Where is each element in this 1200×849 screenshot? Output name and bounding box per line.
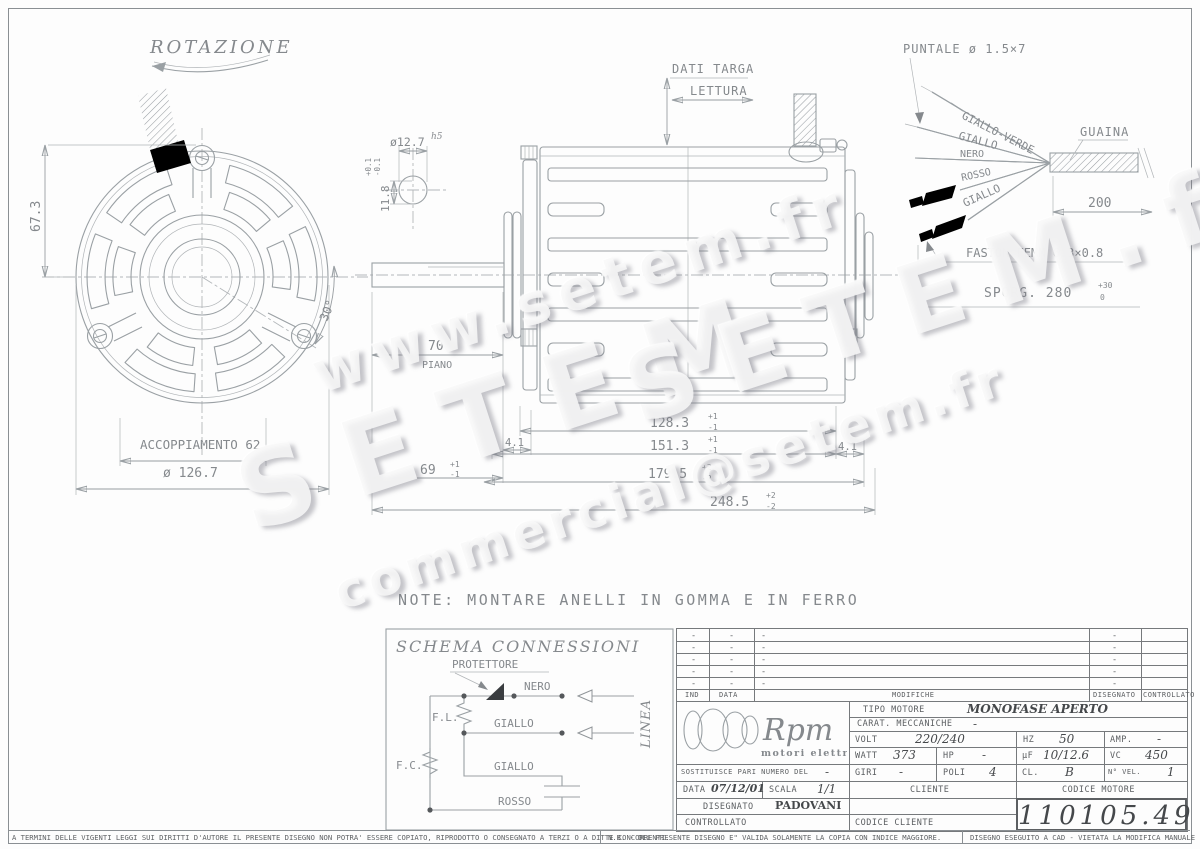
rev-disegnato: - [1112, 655, 1118, 665]
motor-front-view: ROTAZIONE 67.3 ACCOPPIAMENTO 62 ø 126.7 … [29, 37, 368, 495]
logo-subtext: motori elettrici [761, 748, 847, 759]
rev-modifiche: - [761, 679, 767, 689]
data-label: DATA [683, 785, 705, 795]
wire-stripe [951, 103, 963, 111]
tipo-motore-value: MONOFASE APERTO [967, 702, 1108, 716]
vc-label: VC [1110, 751, 1121, 761]
amp-value: - [1157, 732, 1161, 746]
volt-value: 220/240 [915, 732, 965, 746]
rev-ind: - [691, 631, 697, 641]
rev-ind: - [691, 643, 697, 653]
gland-nut [837, 140, 847, 150]
disegnato-label: DISEGNATO [703, 802, 754, 812]
drawing-sheet: ROTAZIONE 67.3 ACCOPPIAMENTO 62 ø 126.7 … [0, 0, 1200, 849]
schema-nero-label: NERO [524, 680, 551, 693]
connection-schema: SCHEMA CONNESSIONI PROTETTORE [386, 629, 673, 830]
schema-giallo2-label: GIALLO [494, 760, 534, 773]
watt-label: WATT [855, 751, 877, 761]
scala-label: SCALA [769, 785, 797, 795]
cl-value: B [1065, 765, 1074, 779]
right-ring-1 [856, 213, 864, 338]
rev-col-ind: IND [685, 691, 699, 699]
cable-fan-detail: PUNTALE ø 1.5×7 GIALLO-VERDE GIALLO NERO… [903, 42, 1154, 330]
vent-slot [87, 234, 112, 309]
tol-128-minus: -1 [708, 423, 718, 432]
nvel-label: N° VEL. [1108, 768, 1141, 776]
faston-connector-giallo [919, 215, 966, 242]
dim-4-1-left: 4.1 [505, 437, 524, 449]
dim-flat-11-8: 11.8 [379, 186, 392, 213]
sporg-tol-minus: 0 [1100, 293, 1105, 302]
data-value: 07/12/01 [711, 782, 765, 795]
linea-arrow-giallo [578, 727, 592, 739]
hz-label: HZ [1023, 735, 1034, 745]
tol-179-minus: -2 [702, 474, 712, 483]
title-block: - - - - - - - - - - - - - - - - - - - - [676, 628, 1188, 832]
scala-value: 1/1 [817, 782, 836, 796]
mounting-lug-left [88, 313, 143, 349]
uf-label: µF [1022, 751, 1033, 761]
linea-label: LINEA [639, 699, 654, 749]
dim-shaft-fit: h5 [431, 132, 443, 142]
dim-70: 70 [428, 339, 444, 354]
faston-connector-rosso [909, 185, 956, 208]
footer-nb: N.B. - DEL PRESENTE DISEGNO E" VALIDA SO… [608, 833, 941, 842]
rev-disegnato: - [1112, 679, 1118, 689]
vent-slot-right [771, 203, 827, 216]
rev-col-data: DATA [719, 691, 738, 699]
tol-128-plus: +1 [708, 412, 718, 421]
tol-151-minus: -1 [708, 446, 718, 455]
rev-data: - [729, 679, 735, 689]
logo-cylinders [684, 709, 758, 751]
hp-label: HP [943, 751, 954, 761]
puntale-tip-1 [921, 86, 932, 92]
rev-col-disegnato: DISEGNATO [1093, 691, 1135, 699]
tol-179-plus: +2 [702, 463, 712, 472]
footer-strip: A TERMINI DELLE VIGENTI LEGGI SUI DIRITT… [8, 830, 1190, 844]
tipo-motore-label: TIPO MOTORE [863, 705, 925, 715]
rev-modifiche: - [761, 631, 767, 641]
schema-fc-label: F.C. [396, 759, 423, 772]
wire-label-giallo-bottom: GIALLO [961, 182, 1003, 210]
linea-arrow-nero [578, 690, 592, 702]
dim-248-5: 248.5 [710, 495, 749, 510]
vent-slot [130, 195, 175, 236]
controllato-label: CONTROLLATO [685, 818, 747, 828]
puntale-label: PUNTALE ø 1.5×7 [903, 42, 1026, 56]
sheath [1050, 153, 1138, 172]
note-text: NOTE: MONTARE ANELLI IN GOMMA E IN FERRO [398, 591, 859, 609]
vent-bar [548, 168, 827, 181]
vent-bar [548, 238, 827, 251]
schema-fl-label: F.L. [432, 711, 459, 724]
poli-value: 4 [989, 765, 997, 779]
rev-modifiche: - [761, 643, 767, 653]
vc-value: 450 [1145, 748, 1168, 762]
piano-label: PIANO [422, 360, 452, 371]
rev-data: - [729, 631, 735, 641]
dim-128-3: 128.3 [650, 416, 689, 431]
dim-4-1-right: 4.1 [838, 441, 857, 453]
rev-col-controllato: CONTROLLATO [1143, 691, 1195, 699]
codice-cliente-label: CODICE CLIENTE [855, 818, 934, 828]
cl-label: CL. [1022, 768, 1039, 778]
volt-label: VOLT [855, 735, 877, 745]
right-ring-2 [865, 232, 873, 320]
footer-copyright: A TERMINI DELLE VIGENTI LEGGI SUI DIRITT… [12, 833, 670, 842]
vent-bar [548, 308, 827, 321]
dati-targa-label: DATI TARGA [672, 62, 754, 76]
dim-151-3: 151.3 [650, 439, 689, 454]
wire-label-nero: NERO [960, 149, 984, 160]
dim-shaft-diameter: ø12.7 [390, 135, 425, 149]
tol-flat-plus: +0.1 [364, 158, 373, 176]
rev-modifiche: - [761, 655, 767, 665]
rotation-arrow [152, 60, 268, 72]
knurl-stud-top-left [521, 146, 537, 159]
sporg-tol-plus: +30 [1098, 281, 1113, 290]
mounting-lug-right [262, 313, 317, 349]
rev-ind: - [691, 655, 697, 665]
cable-exit [794, 94, 816, 146]
schema-giallo1-label: GIALLO [494, 717, 534, 730]
dim-179-5: 179.5 [648, 467, 687, 482]
motor-side-view: DATI TARGA LETTURA 70 PIANO 4.1 69 +1 -1 [355, 62, 902, 515]
uf-value: 10/12.6 [1043, 748, 1089, 762]
tol-151-plus: +1 [708, 435, 718, 444]
logo-text: Rpm [762, 713, 833, 748]
poli-label: POLI [943, 768, 965, 778]
codice-motore-label: CODICE MOTORE [1062, 785, 1135, 795]
lettura-label: LETTURA [690, 84, 748, 98]
giri-label: GIRI [855, 768, 877, 778]
vent-slot-left [548, 203, 604, 216]
tol-69-minus: -1 [450, 470, 460, 479]
rev-data: - [729, 655, 735, 665]
watt-value: 373 [893, 748, 916, 762]
rev-disegnato: - [1112, 667, 1118, 677]
protettore-label: PROTETTORE [452, 658, 518, 671]
hp-value: - [982, 748, 986, 762]
cliente-label: CLIENTE [910, 785, 949, 795]
vent-slot [289, 227, 317, 301]
tol-248-plus: +2 [766, 491, 776, 500]
tol-flat-minus: -0.1 [373, 158, 382, 176]
footer-cad: DISEGNO ESEGUITO A CAD - VIETATA LA MODI… [970, 833, 1195, 842]
guaina-label: GUAINA [1080, 125, 1129, 139]
rev-ind: - [691, 667, 697, 677]
puntale-tip-2 [905, 124, 917, 127]
rev-col-modifiche: MODIFICHE [892, 691, 934, 699]
nvel-value: 1 [1167, 765, 1175, 779]
codice-motore-cell: 110105.49 [1016, 798, 1187, 831]
codice-motore-value: 110105.49 [1018, 801, 1185, 831]
sostituisce-value: - [825, 765, 829, 779]
tol-248-minus: -2 [766, 502, 776, 511]
amp-label: AMP. [1110, 735, 1132, 745]
schema-title: SCHEMA CONNESSIONI [396, 637, 640, 656]
rev-data: - [729, 643, 735, 653]
faston-label: FASTON FEMM 6.3×0.8 [966, 246, 1103, 260]
rotation-label: ROTAZIONE [149, 37, 293, 58]
dim-67-3: 67.3 [29, 201, 44, 232]
vent-slot [226, 165, 293, 217]
rev-disegnato: - [1112, 631, 1118, 641]
rev-ind: - [691, 679, 697, 689]
hz-value: 50 [1059, 732, 1074, 746]
rev-modifiche: - [761, 667, 767, 677]
carat-value: - [973, 717, 977, 731]
rev-data: - [729, 667, 735, 677]
dim-accoppiamento: ACCOPPIAMENTO 62 [140, 437, 260, 452]
tol-69-plus: +1 [450, 460, 460, 469]
vent-slot-left [548, 343, 604, 356]
schema-rosso-label: ROSSO [498, 795, 531, 808]
shaft-section-detail: ø12.7 h5 11.8 +0.1 -0.1 [364, 132, 446, 230]
protector-symbol [486, 683, 504, 700]
vent-slot [224, 192, 270, 231]
rev-disegnato: - [1112, 643, 1118, 653]
vent-slot-right [771, 343, 827, 356]
sostituisce-label: SOSTITUISCE PARI NUMERO DEL [681, 768, 808, 776]
disegnato-value: PADOVANI [775, 799, 841, 812]
vent-slot [267, 241, 291, 290]
carat-label: CARAT. MECCANICHE [857, 719, 953, 729]
sporg-label: SPORG. 280 [984, 286, 1072, 301]
dim-200: 200 [1088, 196, 1111, 211]
dim-diameter: ø 126.7 [163, 466, 218, 481]
giri-value: - [899, 765, 903, 779]
company-logo: Rpm motori elettrici [679, 702, 847, 762]
dim-69: 69 [420, 463, 436, 478]
vent-slot [113, 247, 135, 296]
vent-bar [548, 378, 827, 391]
